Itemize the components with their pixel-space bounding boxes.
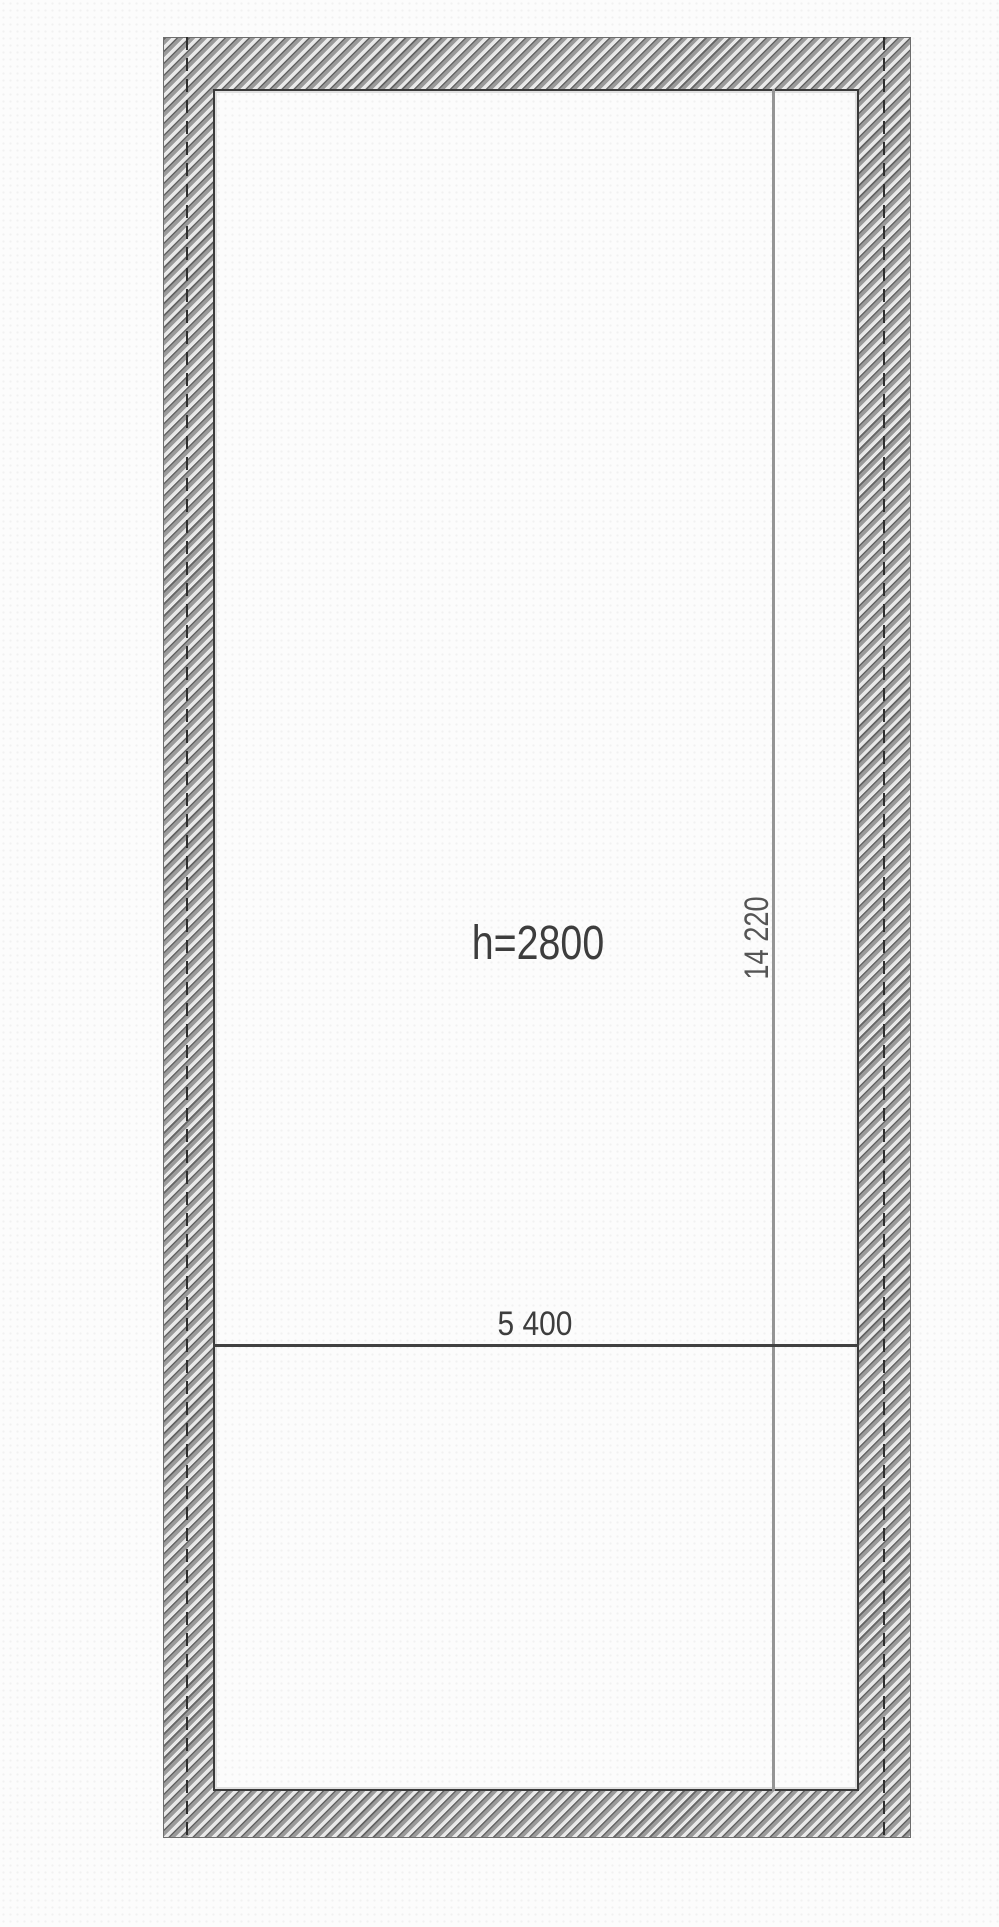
room-length-dimension-label: 14 220 — [740, 896, 774, 979]
floor-plan-canvas: h=2800 5 400 14 220 — [0, 0, 999, 1927]
ceiling-height-label: h=2800 — [472, 920, 604, 968]
wall-axis-line-right — [883, 37, 885, 1838]
room-width-dimension-label: 5 400 — [498, 1307, 573, 1341]
dimension-line-room-width — [213, 1344, 859, 1347]
wall-axis-line-left — [186, 37, 188, 1838]
